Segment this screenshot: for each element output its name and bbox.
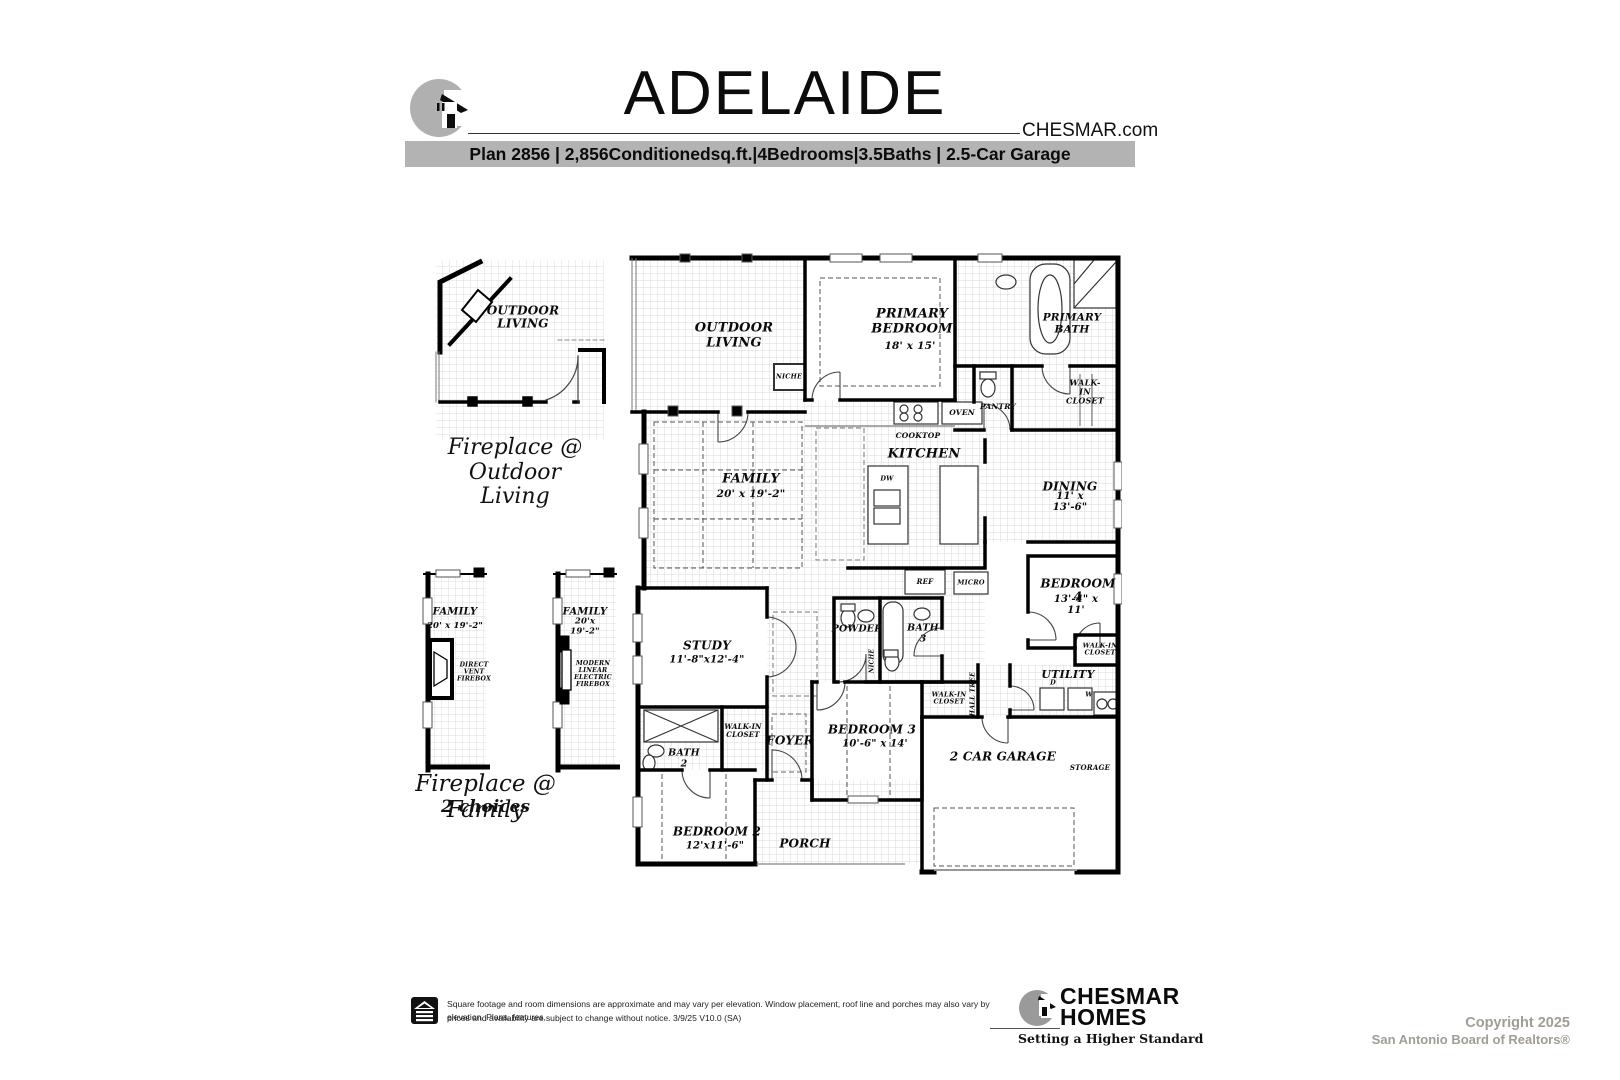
equal-housing-icon bbox=[411, 997, 438, 1024]
room-primary-bath: PRIMARY BATH bbox=[1043, 312, 1102, 336]
room-walkin-bed3: WALK-IN CLOSET bbox=[932, 692, 967, 707]
label-storage: STORAGE bbox=[1070, 764, 1110, 772]
label-cooktop: COOKTOP bbox=[896, 432, 941, 440]
label-dryer: D bbox=[1050, 679, 1056, 686]
chesmar-homes-logo-icon bbox=[1018, 986, 1060, 1034]
room-bedroom2-dims: 12'x11'-6" bbox=[686, 840, 744, 851]
room-primary-bedroom: PRIMARY BEDROOM bbox=[871, 307, 952, 336]
label-hall-tree: HALL TREE bbox=[969, 672, 976, 717]
option-outdoor-fireplace: OUTDOOR LIVING bbox=[428, 252, 608, 447]
room-powder: POWDER bbox=[832, 625, 883, 636]
label-ref: REF bbox=[917, 578, 934, 586]
room-porch: PORCH bbox=[779, 837, 830, 850]
label-washer: W bbox=[1085, 691, 1093, 698]
room-kitchen: KITCHEN bbox=[888, 448, 961, 463]
room-outdoor-living: OUTDOOR LIVING bbox=[695, 321, 773, 350]
room-garage: 2 CAR GARAGE bbox=[950, 750, 1056, 763]
room-study-dims: 11'-8"x12'-4" bbox=[669, 654, 744, 665]
brand-tagline-rule bbox=[990, 1028, 1060, 1029]
room-pantry: PANTRY bbox=[980, 403, 1016, 411]
option-family-subcaption: 2 choices bbox=[398, 798, 573, 817]
room-walkin-primary: WALK-IN CLOSET bbox=[1066, 379, 1104, 406]
label-micro: MICRO bbox=[957, 579, 984, 586]
room-family-dims: 20' x 19'-2" bbox=[717, 489, 786, 501]
room-foyer: FOYER bbox=[766, 734, 814, 747]
option-family-left-dims: 20' x 19'-2" bbox=[427, 622, 483, 632]
room-dining-dims: 11' x 13'-6" bbox=[1044, 491, 1096, 513]
label-dw: DW bbox=[880, 475, 893, 482]
room-primary-bedroom-dims: 18' x 15' bbox=[884, 341, 935, 353]
brand-name-line2: HOMES bbox=[1060, 1007, 1180, 1028]
brand-tagline: Setting a Higher Standard bbox=[1018, 1031, 1178, 1046]
header-rule bbox=[468, 133, 1020, 134]
option-family-left-firebox-label: DIRECT VENT FIREBOX bbox=[457, 663, 491, 684]
copyright-line1: Copyright 2025 bbox=[1280, 1014, 1570, 1032]
website-url: CHESMAR.com bbox=[1022, 120, 1148, 142]
option-outdoor-caption: Fireplace @ Outdoor Living bbox=[430, 436, 600, 510]
room-bedroom4-dims: 13'-4" x 11' bbox=[1053, 594, 1099, 616]
room-bath3: BATH 3 bbox=[907, 623, 939, 644]
disclaimer-line2: prices and availability are subject to c… bbox=[447, 1012, 1022, 1025]
room-walkin-bed2: WALK-IN CLOSET bbox=[724, 723, 761, 739]
option-family-right-firebox-label: MODERN LINEAR ELECTRIC FIREBOX bbox=[574, 661, 612, 689]
label-niche: NICHE bbox=[776, 373, 802, 380]
room-bath2: BATH 2 bbox=[668, 748, 700, 769]
plan-title: ADELAIDE bbox=[560, 58, 1010, 129]
label-oven: OVEN bbox=[949, 409, 975, 417]
label-niche-2: NICHE bbox=[870, 649, 877, 673]
option-family-fireplaces: FAMILY 20' x 19'-2" DIRECT VENT FIREBOX … bbox=[415, 560, 625, 795]
option-family-left-room-label: FAMILY bbox=[433, 606, 478, 617]
room-study: STUDY bbox=[683, 639, 731, 652]
room-bedroom3-dims: 10'-6" x 14' bbox=[842, 738, 908, 749]
room-bedroom3: BEDROOM 3 bbox=[828, 723, 916, 736]
copyright-block: Copyright 2025 San Antonio Board of Real… bbox=[1280, 1014, 1570, 1048]
room-bedroom2: BEDROOM 2 bbox=[673, 825, 761, 838]
floorplan-sheet: ADELAIDE CHESMAR.com Plan 2856 | 2,856Co… bbox=[0, 0, 1620, 1080]
option-family-right-dims: 20'x 19'-2" bbox=[565, 617, 605, 636]
option-outdoor-fireplace-drawing bbox=[428, 252, 608, 447]
copyright-line2: San Antonio Board of Realtors® bbox=[1280, 1032, 1570, 1048]
main-floorplan: OUTDOOR LIVING PRIMARY BEDROOM 18' x 15'… bbox=[622, 252, 1122, 882]
room-walkin-bed4: WALK-IN CLOSET bbox=[1080, 643, 1120, 658]
option-outdoor-room-label: OUTDOOR LIVING bbox=[487, 305, 560, 332]
room-family: FAMILY bbox=[722, 473, 780, 488]
plan-specs-bar: Plan 2856 | 2,856Conditionedsq.ft.|4Bedr… bbox=[405, 141, 1135, 167]
